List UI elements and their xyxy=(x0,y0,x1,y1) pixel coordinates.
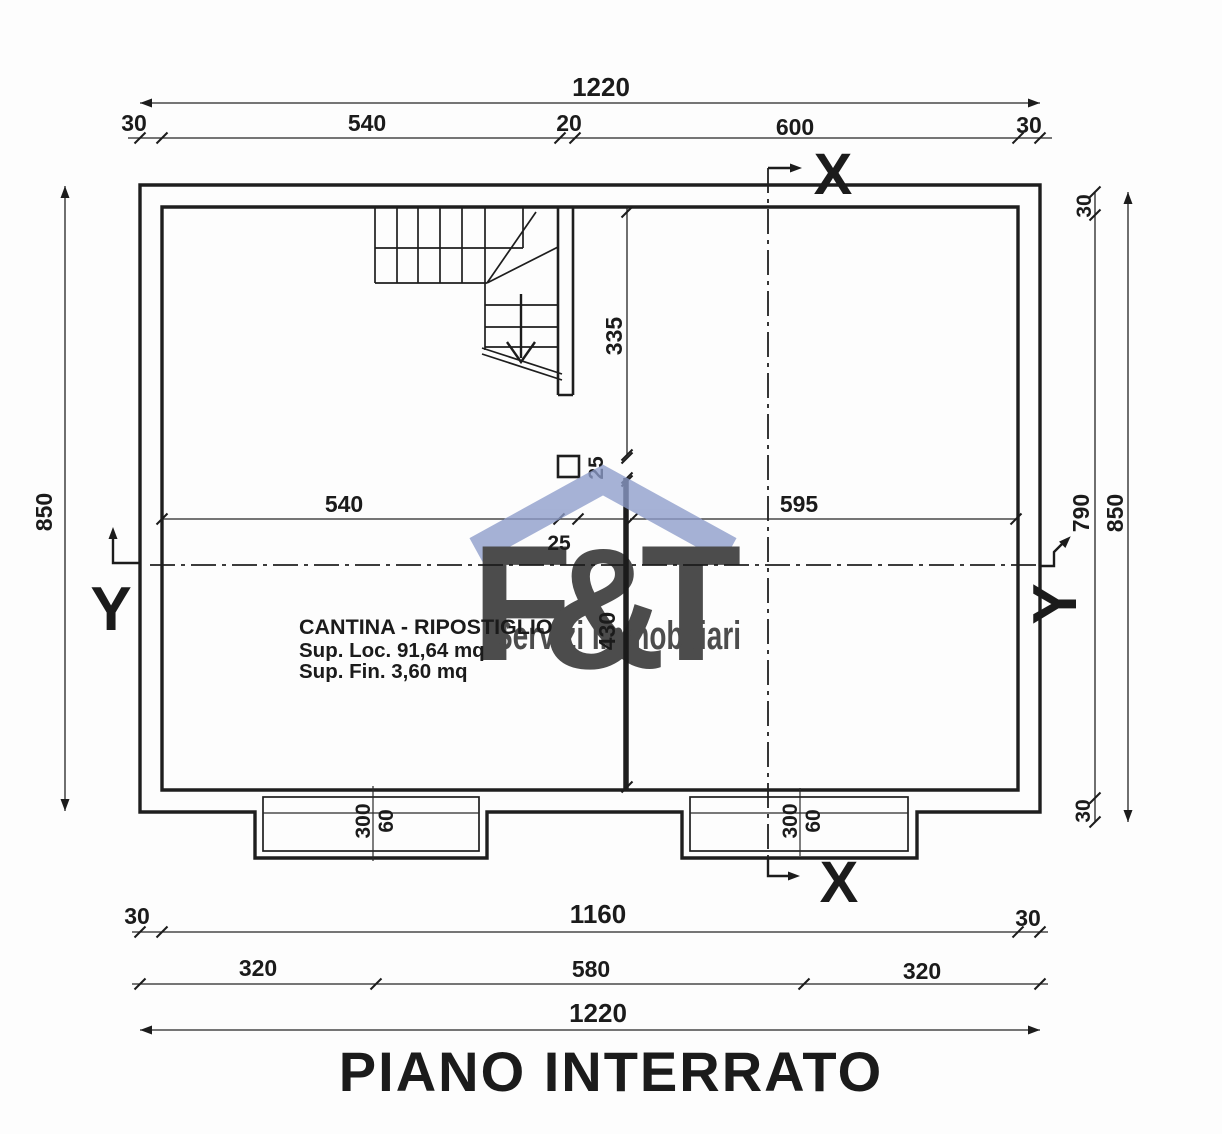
floor-plan-drawing: 300 60 300 60 X X Y Y xyxy=(0,0,1222,1134)
dim-interior-335: 335 xyxy=(601,317,627,356)
dim-left-total: 850 xyxy=(31,493,57,531)
room-surface-loc: Sup. Loc. 91,64 mq xyxy=(299,639,485,662)
dim-top-30-left: 30 xyxy=(121,110,147,136)
dim-bottom-580: 580 xyxy=(572,956,610,982)
dim-interior-540: 540 xyxy=(325,491,363,517)
dim-top-540: 540 xyxy=(348,110,386,136)
section-x-bottom-label: X xyxy=(820,850,859,915)
dim-right-30-top: 30 xyxy=(1073,194,1096,217)
room-surface-fin: Sup. Fin. 3,60 mq xyxy=(299,660,468,683)
watermark: F & T Servizi Immobiliari xyxy=(472,480,742,705)
dim-lightwell-width: 300 xyxy=(779,803,802,838)
dim-bottom-30-right: 30 xyxy=(1015,905,1041,931)
dim-top-total: 1220 xyxy=(572,72,630,102)
dim-bottom-1160: 1160 xyxy=(570,899,626,929)
section-y-right-label: Y xyxy=(1021,583,1090,624)
dim-interior-595: 595 xyxy=(780,491,819,517)
watermark-letter-t: T xyxy=(641,511,742,695)
section-x-top-label: X xyxy=(814,142,853,207)
drawing-title: PIANO INTERRATO xyxy=(339,1040,883,1103)
dim-top-20: 20 xyxy=(556,110,582,136)
section-y-left-label: Y xyxy=(90,575,131,644)
dim-top-600: 600 xyxy=(776,114,814,140)
dim-right-790: 790 xyxy=(1068,494,1094,532)
watermark-subtitle: Servizi Immobiliari xyxy=(494,614,741,658)
dim-top-30-right: 30 xyxy=(1016,112,1042,138)
dim-bottom-30-left: 30 xyxy=(124,903,150,929)
dim-lightwell-width: 300 xyxy=(352,803,375,838)
dim-lightwell-depth: 60 xyxy=(375,809,398,832)
dim-bottom-320-left: 320 xyxy=(239,955,277,981)
dim-bottom-320-right: 320 xyxy=(903,958,941,984)
dim-right-850: 850 xyxy=(1102,494,1128,532)
dim-lightwell-depth: 60 xyxy=(802,809,825,832)
scanned-floor-plan-page: 300 60 300 60 X X Y Y xyxy=(0,0,1222,1134)
dim-right-30-bottom: 30 xyxy=(1072,799,1095,822)
dim-bottom-total: 1220 xyxy=(569,998,627,1028)
